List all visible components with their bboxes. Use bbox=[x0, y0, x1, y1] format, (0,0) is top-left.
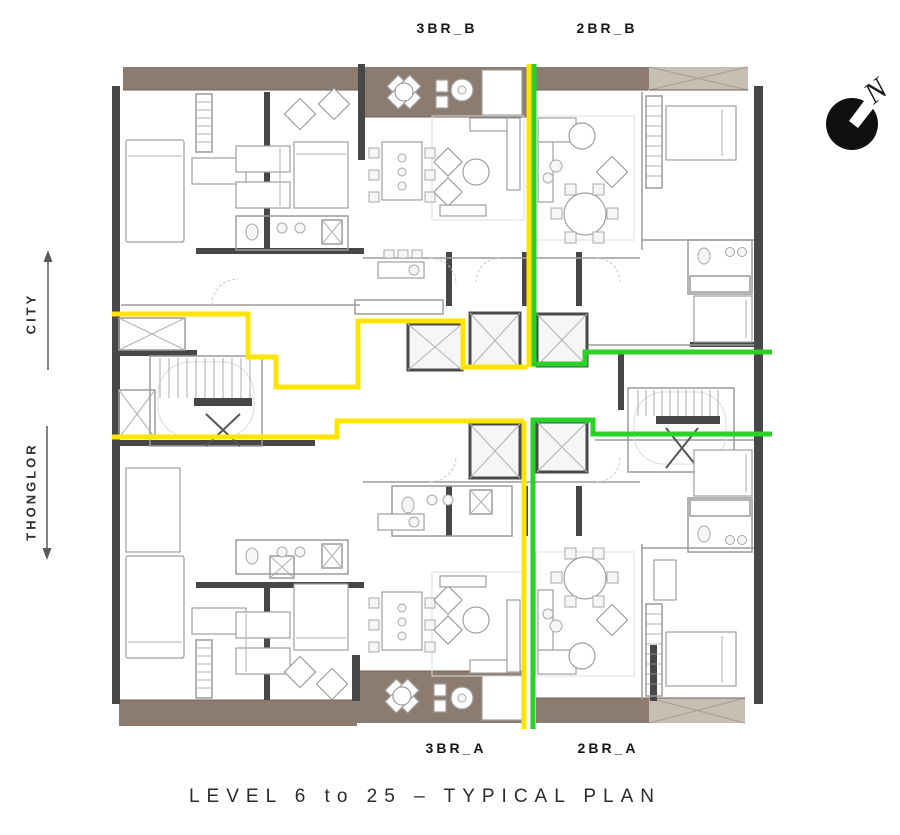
unit-2br-b bbox=[536, 96, 752, 342]
floorplan-page: N 3BR_B 2BR_B 3BR_A 2BR_A CITY THONGLOR … bbox=[0, 0, 900, 835]
floorplan-svg: N bbox=[0, 0, 900, 835]
stair-left bbox=[150, 356, 262, 446]
unit-2br-a bbox=[536, 450, 752, 696]
plan-title: LEVEL 6 to 25 – TYPICAL PLAN bbox=[125, 786, 725, 808]
core-area bbox=[119, 258, 734, 578]
unit-3br-b bbox=[126, 88, 524, 314]
unit-label-2br-b: 2BR_B bbox=[557, 20, 657, 36]
unit-3br-a bbox=[126, 468, 524, 700]
unit-label-2br-a: 2BR_A bbox=[558, 740, 658, 756]
unit-label-3br-a: 3BR_A bbox=[406, 740, 506, 756]
direction-label-thonglor: THONGLOR bbox=[10, 424, 52, 558]
direction-label-city: CITY bbox=[10, 255, 52, 371]
city-text: CITY bbox=[24, 292, 39, 334]
unit-label-3br-b: 3BR_B bbox=[397, 20, 497, 36]
north-compass-icon: N bbox=[826, 71, 895, 150]
thonglor-text: THONGLOR bbox=[24, 442, 39, 540]
divider-yellow-lower bbox=[112, 421, 524, 437]
